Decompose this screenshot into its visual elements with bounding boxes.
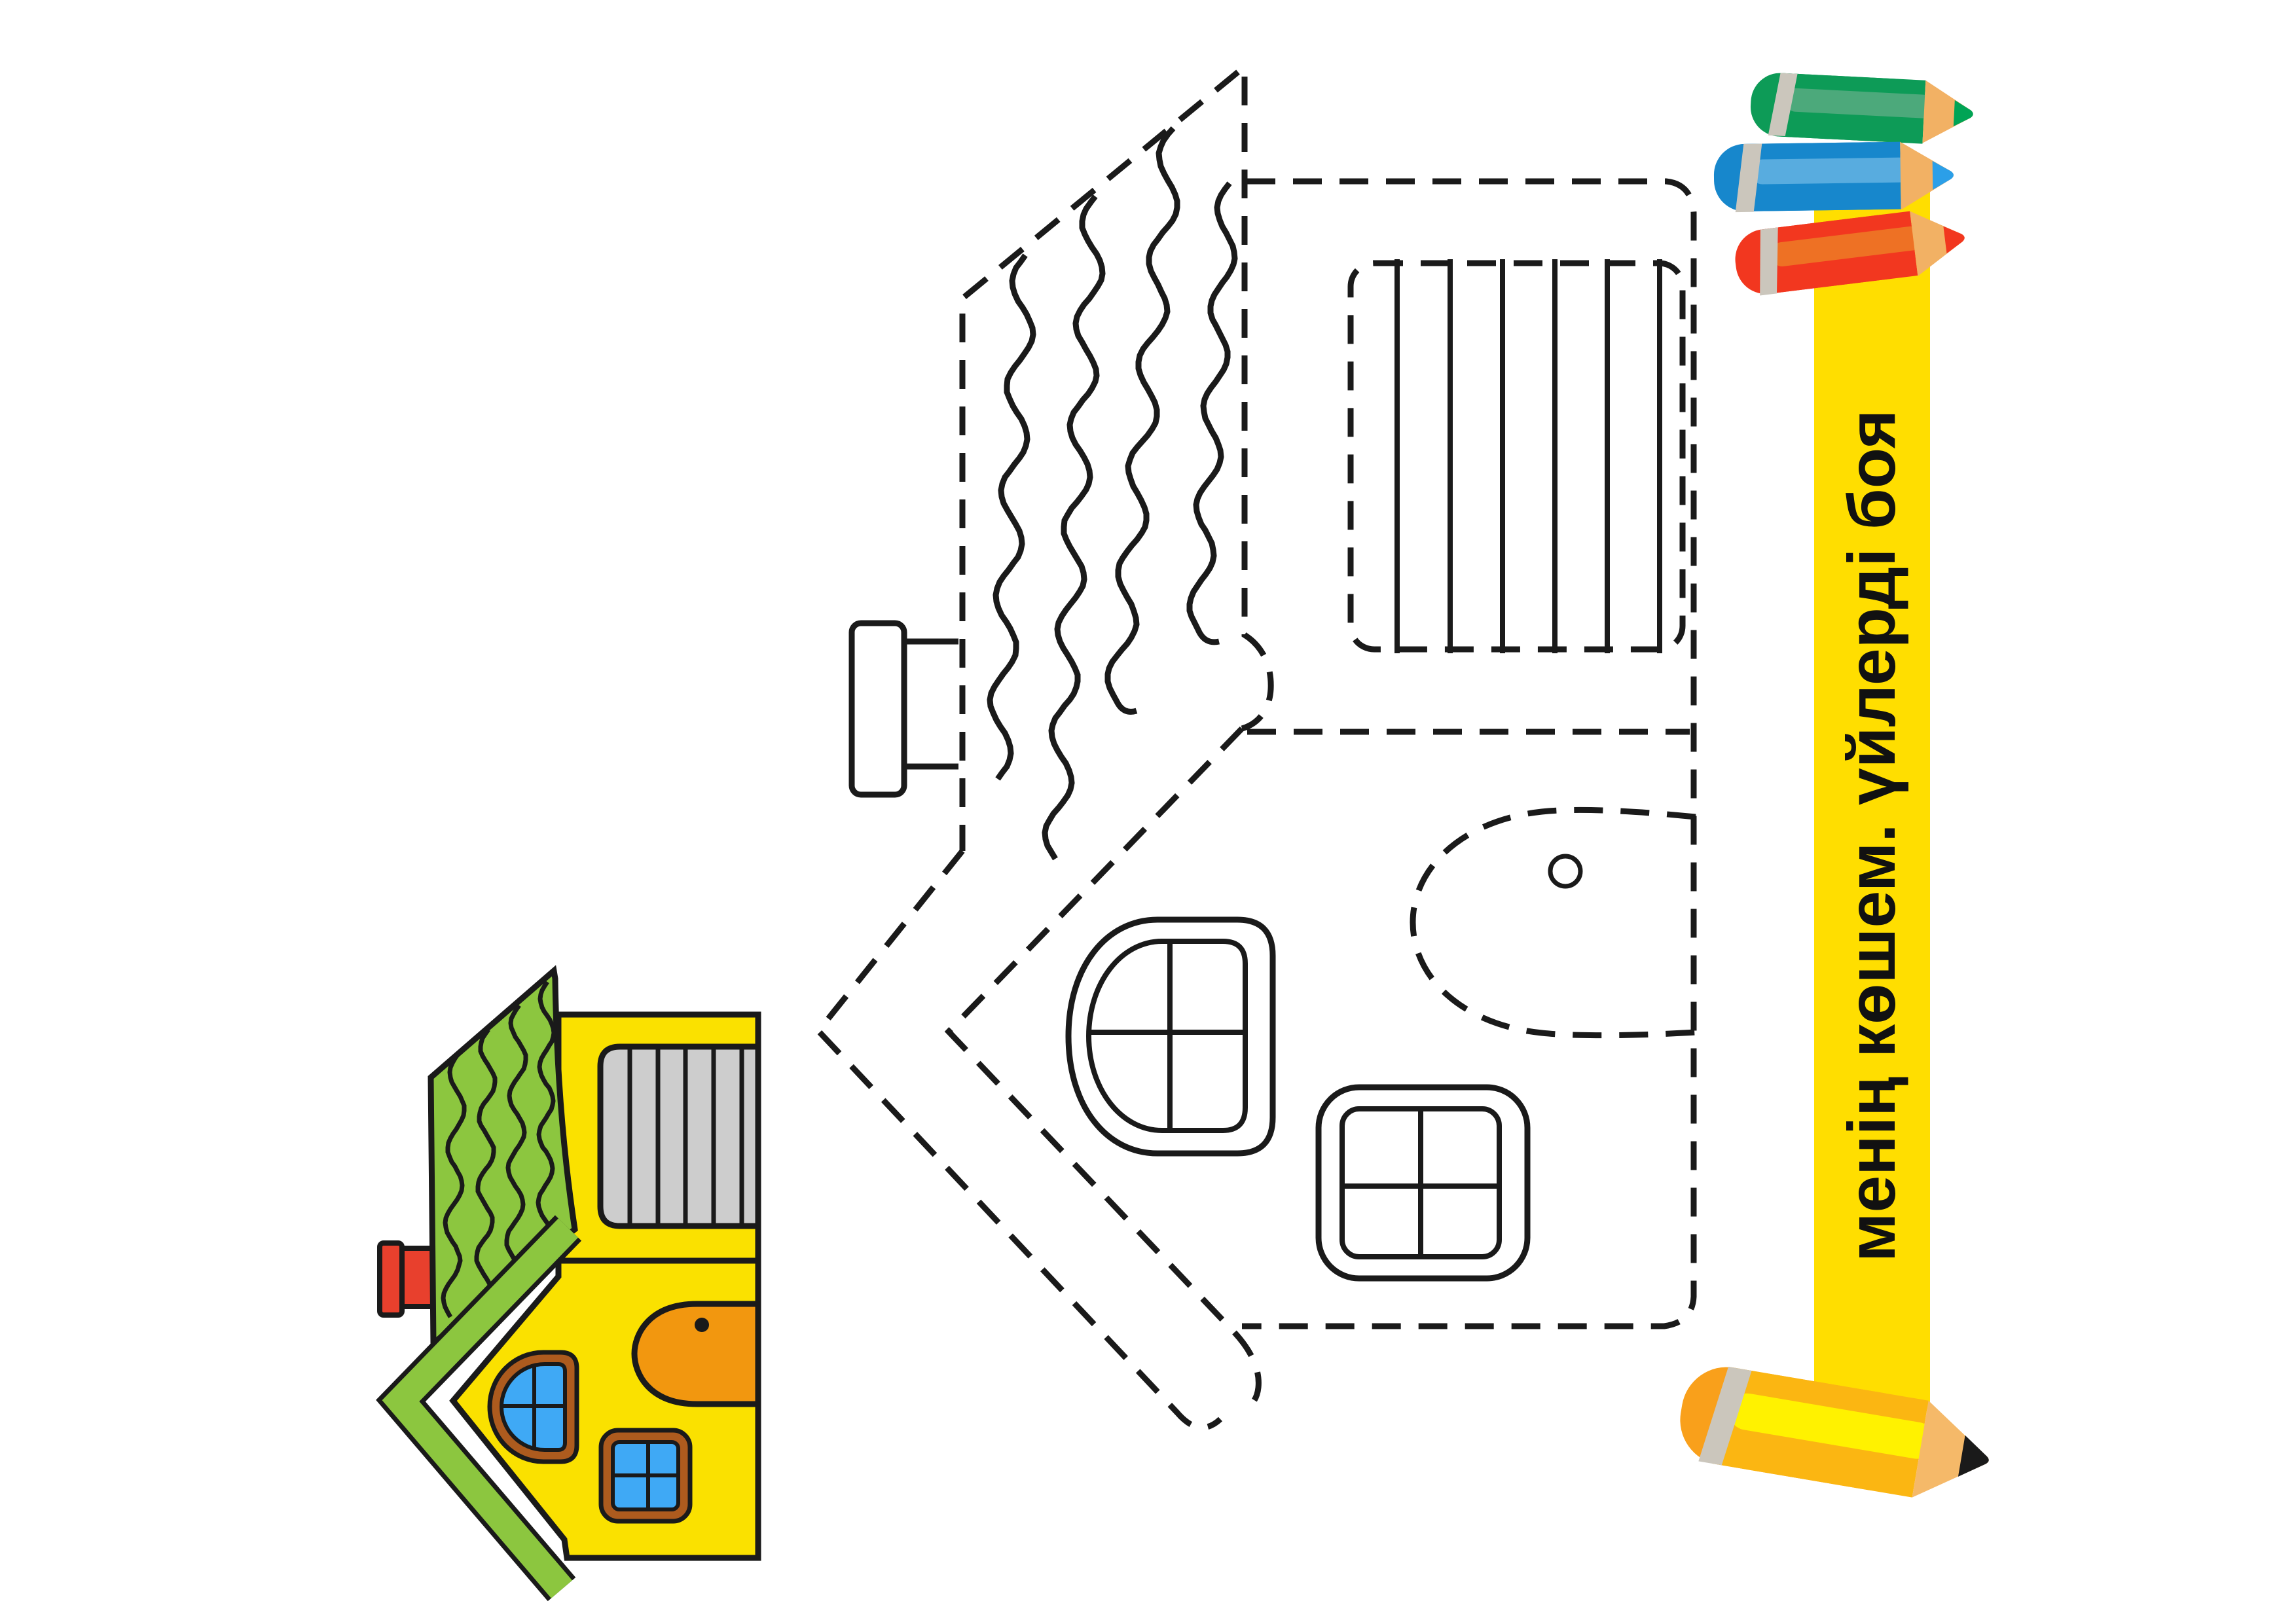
svg-text:менің көшем. үйлерді боя: менің көшем. үйлерді боя: [1834, 410, 1909, 1262]
